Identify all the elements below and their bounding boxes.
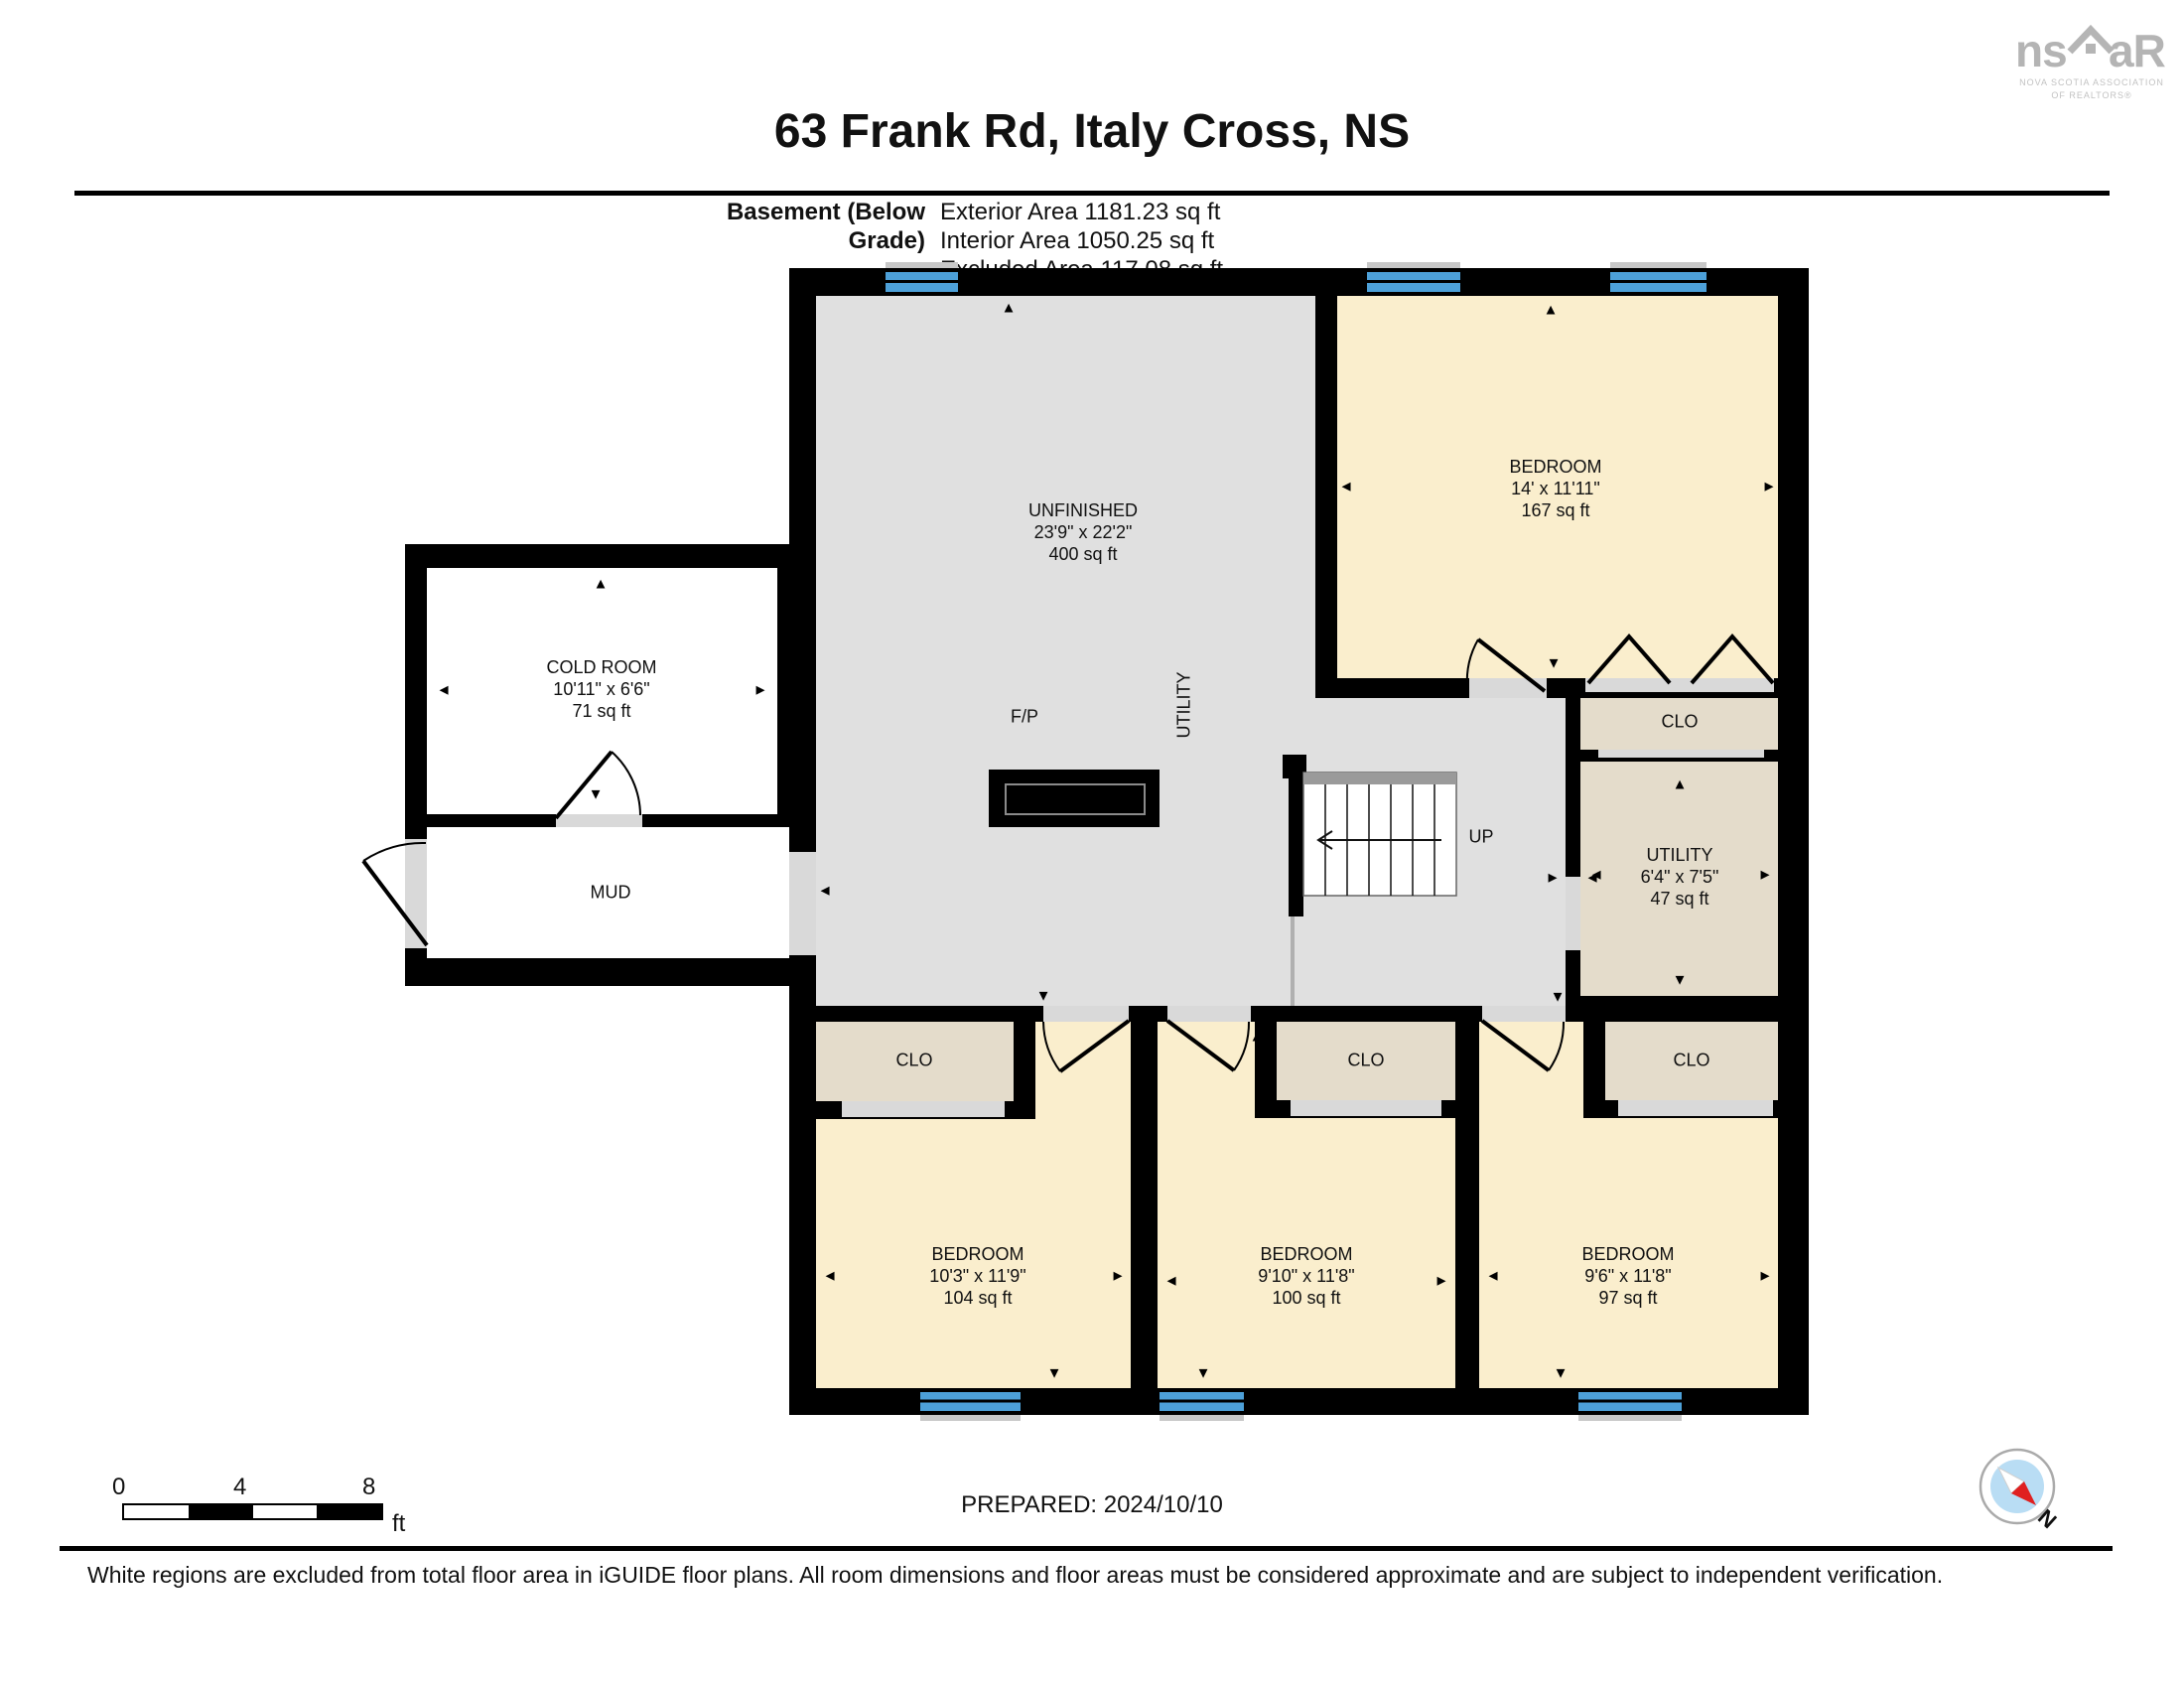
clo-top-bottom-sill xyxy=(1598,750,1764,758)
window-sill xyxy=(1160,1415,1244,1421)
arrow-right-icon: ► xyxy=(1762,480,1777,494)
arrow-down-icon: ▼ xyxy=(1673,973,1688,988)
bedroom-1-door-gap xyxy=(1043,1006,1129,1022)
clo-2-door-sill xyxy=(1291,1100,1441,1116)
window-sill xyxy=(1578,1415,1682,1421)
clo-3-door-sill xyxy=(1618,1100,1773,1116)
scale-unit-label: ft xyxy=(392,1510,405,1538)
nsar-caption-2: OF REALTORS® xyxy=(2007,90,2176,100)
arrow-left-icon: ◄ xyxy=(823,1269,838,1284)
floorplan-page: 63 Frank Rd, Italy Cross, NS Basement (B… xyxy=(0,0,2184,1688)
mud-label: MUD xyxy=(591,883,631,904)
arrow-down-icon: ▼ xyxy=(1547,656,1562,671)
stairs-up-label: UP xyxy=(1468,827,1493,848)
arrow-right-icon: ► xyxy=(1111,1269,1126,1284)
hallway-area xyxy=(1315,698,1566,1006)
arrow-left-icon: ◄ xyxy=(437,683,452,698)
exterior-area: Exterior Area 1181.23 sq ft xyxy=(940,198,1223,226)
arrow-left-icon: ◄ xyxy=(818,884,833,899)
utility-door-gap xyxy=(1566,877,1580,950)
fireplace-inner-outline xyxy=(1005,783,1146,815)
arrow-down-icon: ▼ xyxy=(1036,989,1051,1004)
window-bottom-1 xyxy=(920,1388,1021,1415)
arrow-up-icon: ▲ xyxy=(1673,777,1688,792)
bedroom-3-door-gap xyxy=(1482,1006,1566,1022)
bedroom-top-label: BEDROOM 14' x 11'11" 167 sq ft xyxy=(1509,456,1601,521)
bedroom-top-door-gap xyxy=(1469,678,1547,698)
arrow-right-icon: ► xyxy=(1546,871,1561,886)
utility-area-label: UTILITY xyxy=(1174,671,1195,738)
clo-3-label: CLO xyxy=(1673,1051,1709,1071)
window-top-2 xyxy=(1367,268,1460,296)
window-top-1 xyxy=(886,268,958,296)
arrow-left-icon: ◄ xyxy=(1486,1269,1501,1284)
header-divider xyxy=(74,191,2110,196)
arrow-down-icon: ▼ xyxy=(1551,990,1566,1005)
scale-bar xyxy=(122,1503,383,1520)
arrow-down-icon: ▼ xyxy=(1554,1366,1569,1381)
nsar-logo-ns: ns xyxy=(2015,24,2067,77)
bedroom-2-label: BEDROOM 9'10" x 11'8" 100 sq ft xyxy=(1258,1243,1354,1309)
stair-wall xyxy=(1289,776,1303,916)
floor-label: Basement (Below Grade) xyxy=(695,198,925,255)
arrow-down-icon: ▼ xyxy=(1047,1366,1062,1381)
cold-room-label: COLD ROOM 10'11" x 6'6" 71 sq ft xyxy=(546,656,656,722)
arrow-up-icon: ▲ xyxy=(1250,1030,1265,1045)
window-top-3 xyxy=(1610,268,1706,296)
cold-room-door-gap xyxy=(556,814,642,827)
window-bottom-3 xyxy=(1578,1388,1682,1415)
clo-2-label: CLO xyxy=(1347,1051,1384,1071)
arrow-right-icon: ► xyxy=(753,683,768,698)
footer-divider xyxy=(60,1546,2113,1551)
stair-rail-line xyxy=(1291,916,1295,1006)
arrow-down-icon: ▼ xyxy=(1196,1366,1211,1381)
prepared-date: PREPARED: 2024/10/10 xyxy=(961,1491,1223,1519)
page-title: 63 Frank Rd, Italy Cross, NS xyxy=(0,104,2184,159)
bedroom-2-door-gap xyxy=(1167,1006,1251,1022)
arrow-down-icon: ▼ xyxy=(589,787,604,802)
unfinished-room xyxy=(816,296,1315,1006)
arrow-right-icon: ► xyxy=(1758,868,1773,883)
clo-top-bifold-sill xyxy=(1585,678,1774,692)
arrow-left-icon: ◄ xyxy=(1339,480,1354,494)
mud-hall-door-gap xyxy=(789,852,816,955)
arrow-up-icon: ▲ xyxy=(594,577,609,592)
clo-1-label: CLO xyxy=(895,1051,932,1071)
unfinished-label: UNFINISHED 23'9" x 22'2" 400 sq ft xyxy=(1028,499,1138,565)
fireplace-label: F/P xyxy=(1011,707,1038,728)
interior-area: Interior Area 1050.25 sq ft xyxy=(940,226,1223,255)
window-sill xyxy=(920,1415,1021,1421)
stair-newel-post xyxy=(1283,755,1306,778)
north-label: N xyxy=(2032,1504,2061,1534)
clo-top-label: CLO xyxy=(1661,712,1698,733)
arrow-up-icon: ▲ xyxy=(1002,301,1017,316)
nsar-caption-1: NOVA SCOTIA ASSOCIATION xyxy=(2007,77,2176,87)
bedroom-1-label: BEDROOM 10'3" x 11'9" 104 sq ft xyxy=(929,1243,1025,1309)
utility-room-label: UTILITY 6'4" x 7'5" 47 sq ft xyxy=(1641,844,1719,910)
window-bottom-2 xyxy=(1160,1388,1244,1415)
arrow-right-icon: ► xyxy=(1434,1274,1449,1289)
arrow-up-icon: ▲ xyxy=(1544,303,1559,318)
arrow-left-icon: ◄ xyxy=(1164,1274,1179,1289)
clo-1-door-sill xyxy=(842,1101,1005,1117)
disclaimer-text: White regions are excluded from total fl… xyxy=(87,1562,1943,1589)
arrow-right-icon: ► xyxy=(1758,1269,1773,1284)
mud-exterior-door-gap xyxy=(405,839,427,948)
bedroom-3-label: BEDROOM 9'6" x 11'8" 97 sq ft xyxy=(1581,1243,1674,1309)
arrow-left-icon: ◄ xyxy=(1585,871,1600,886)
nsar-logo-ar: aR xyxy=(2109,24,2165,77)
